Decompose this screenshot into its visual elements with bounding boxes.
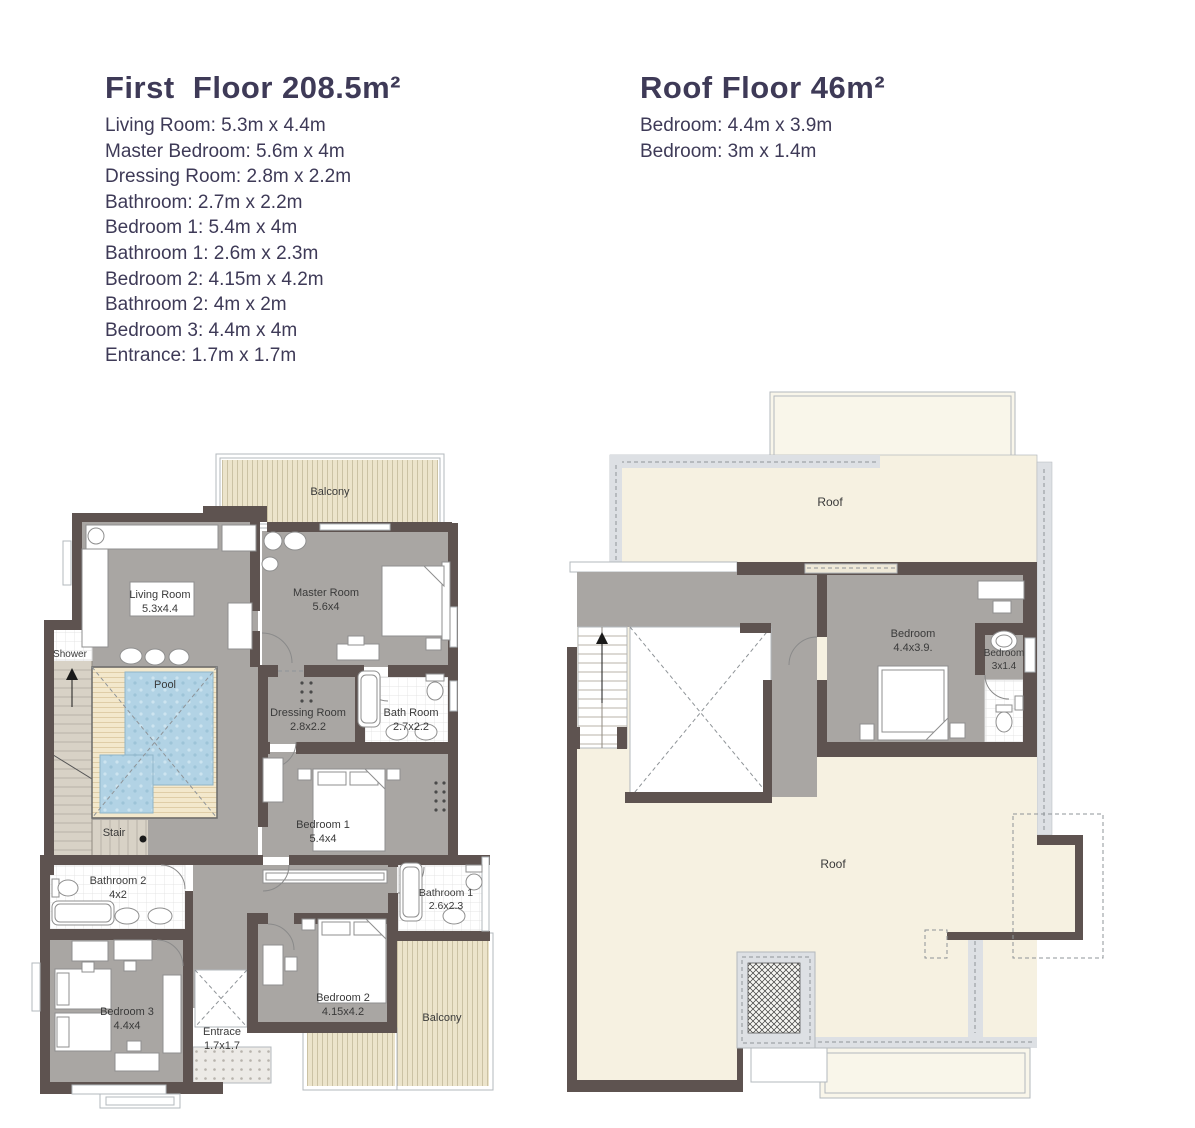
wall — [40, 865, 50, 1092]
dimension-line: Bedroom 3: 4.4m x 4m — [105, 318, 401, 344]
label-balcony-br: Balcony — [422, 1012, 462, 1024]
desk — [337, 644, 379, 660]
wall — [570, 727, 580, 749]
label-bathroom2: Bathroom 2 — [90, 875, 147, 887]
shape-rect — [751, 1048, 827, 1082]
dimension-line: Master Bedroom: 5.6m x 4m — [105, 139, 401, 165]
shape-rect — [466, 865, 482, 872]
roof-floor-dimensions: Bedroom: 4.4m x 3.9mBedroom: 3m x 1.4m — [640, 113, 885, 164]
label-roof-bedroom2: Bedroom — [984, 648, 1025, 659]
dimension-line: Bathroom 2: 4m x 2m — [105, 292, 401, 318]
wall — [625, 792, 772, 803]
roof-floor-plan: RoofBedroom4.4x3.9.Bedroom3x1.4Roof — [555, 385, 1195, 1128]
wall — [567, 647, 577, 1087]
wardrobe — [284, 532, 306, 550]
nightstand — [950, 723, 965, 738]
window — [72, 1085, 166, 1094]
wall — [567, 1080, 739, 1092]
label-balcony-top: Balcony — [310, 486, 350, 498]
sofa — [86, 525, 218, 549]
roof-floor-plan-svg: RoofBedroom4.4x3.9.Bedroom3x1.4Roof — [555, 385, 1195, 1123]
wall — [388, 893, 398, 931]
stair-dot — [140, 836, 147, 843]
label-roof-bedroom2-dims: 3x1.4 — [992, 661, 1017, 672]
wall — [388, 931, 490, 941]
toilet — [427, 682, 443, 700]
wall — [617, 727, 627, 749]
toilet — [996, 712, 1012, 732]
wardrobe — [262, 557, 278, 571]
dimension-line: Dressing Room: 2.8m x 2.2m — [105, 164, 401, 190]
dimension-line: Bathroom 1: 2.6m x 2.3m — [105, 241, 401, 267]
sofa — [82, 549, 108, 647]
wall — [258, 677, 268, 744]
dimension-line: Entrance: 1.7m x 1.7m — [105, 343, 401, 369]
wall — [763, 680, 772, 792]
label-roof-bedroom: Bedroom — [891, 628, 936, 640]
desk — [72, 941, 108, 961]
shape-rect — [1015, 696, 1023, 710]
entry-steps — [193, 1047, 271, 1083]
armchair — [222, 525, 256, 551]
label-roof-main: Roof — [820, 857, 846, 871]
shape-ellipse — [88, 528, 104, 544]
window — [320, 524, 390, 530]
pool-water-small — [100, 755, 153, 813]
shape-rect — [57, 973, 69, 1005]
label-bathroom2-dims: 4x2 — [109, 889, 127, 901]
wall — [183, 933, 193, 1094]
chair — [82, 962, 94, 972]
window — [450, 607, 457, 647]
pergola-lattice — [748, 963, 800, 1033]
chair — [348, 636, 364, 645]
roof-top-panel — [770, 392, 1015, 462]
label-bath-room-dims: 2.7x2.2 — [393, 721, 429, 733]
window — [32, 963, 40, 1011]
wardrobe — [264, 532, 282, 550]
dimension-line: Living Room: 5.3m x 4.4m — [105, 113, 401, 139]
window — [450, 681, 457, 711]
parapet — [482, 857, 489, 931]
bathtub — [52, 901, 114, 925]
wall — [258, 665, 278, 677]
roof-top — [610, 455, 1037, 563]
roof-floor-title: Roof Floor 46m² — [640, 70, 885, 106]
desk — [978, 581, 1024, 599]
nightstand — [298, 769, 311, 780]
wall — [40, 929, 185, 940]
parapet — [570, 562, 737, 572]
dresser — [115, 1053, 159, 1071]
page: { "palette": { "wall":"#5e5350","floor":… — [0, 0, 1195, 1123]
label-dressing-room: Dressing Room — [270, 707, 346, 719]
label-dressing-room-dims: 2.8x2.2 — [290, 721, 326, 733]
window — [63, 541, 71, 585]
sink — [148, 908, 172, 924]
corridor-floor — [577, 572, 817, 627]
label-shower: Shower — [53, 649, 88, 660]
label-bathroom1: Bathroom 1 — [419, 887, 473, 899]
label-bedroom3-dims: 4.4x4 — [114, 1020, 141, 1032]
wall — [304, 665, 364, 677]
wall — [817, 680, 827, 742]
porch — [100, 1094, 180, 1108]
dimension-line: Bedroom 1: 5.4m x 4m — [105, 215, 401, 241]
label-bathroom1-dims: 2.6x2.3 — [429, 900, 464, 912]
label-bedroom1: Bedroom 1 — [296, 819, 350, 831]
wall — [448, 742, 458, 855]
wall — [72, 513, 82, 625]
planter — [169, 649, 189, 665]
label-living-room: Living Room — [129, 589, 190, 601]
shape-rect — [426, 674, 444, 681]
wall — [817, 575, 827, 637]
toilet — [58, 880, 78, 896]
shape-rect — [577, 1037, 739, 1082]
wall — [193, 855, 263, 865]
wardrobe — [163, 975, 181, 1053]
wall — [1075, 835, 1083, 940]
label-master-room-dims: 5.6x4 — [313, 601, 340, 613]
label-bedroom2-dims: 4.15x4.2 — [322, 1006, 364, 1018]
wall — [817, 742, 1037, 757]
label-bath-room: Bath Room — [383, 707, 438, 719]
planter — [120, 648, 142, 664]
dimension-line: Bedroom: 4.4m x 3.9m — [640, 113, 885, 139]
closet — [263, 870, 387, 883]
nightstand — [860, 724, 874, 740]
roof-lower-terrace — [820, 1048, 1030, 1098]
wall — [388, 855, 398, 867]
wall — [258, 913, 268, 924]
label-bedroom3: Bedroom 3 — [100, 1006, 154, 1018]
landing-floor — [771, 627, 817, 797]
chair — [285, 957, 297, 971]
desk — [263, 945, 283, 985]
label-bedroom1-dims: 5.4x4 — [310, 833, 337, 845]
shape-rect — [57, 1017, 69, 1047]
wall — [185, 891, 193, 940]
wall — [247, 913, 258, 1033]
first-floor-header: First Floor 208.5m² Living Room: 5.3m x … — [105, 70, 401, 369]
first-floor-dimensions: Living Room: 5.3m x 4.4mMaster Bedroom: … — [105, 113, 401, 369]
label-living-room-dims: 5.3x4.4 — [142, 603, 178, 615]
shape-rect — [322, 922, 350, 935]
wall — [247, 1022, 397, 1033]
nightstand — [302, 919, 315, 930]
planter — [145, 649, 165, 665]
label-entrance: Entrace — [203, 1026, 241, 1038]
desk — [114, 940, 152, 960]
stairs — [54, 661, 92, 861]
wall — [947, 932, 1083, 940]
shape-rect — [318, 772, 346, 785]
label-roof-bedroom-dims: 4.4x3.9. — [893, 642, 932, 654]
shape-rect — [1037, 845, 1075, 932]
label-bedroom2: Bedroom 2 — [316, 992, 370, 1004]
dimension-line: Bathroom: 2.7m x 2.2m — [105, 190, 401, 216]
label-master-room: Master Room — [293, 587, 359, 599]
label-entrance-dims: 1.7x1.7 — [204, 1040, 240, 1052]
first-floor-plan: BalconyLiving Room5.3x4.4Master Room5.6x… — [30, 435, 530, 1128]
first-floor-plan-svg: BalconyLiving Room5.3x4.4Master Room5.6x… — [30, 435, 530, 1123]
roof-floor-header: Roof Floor 46m² Bedroom: 4.4m x 3.9mBedr… — [640, 70, 885, 164]
wall — [740, 623, 771, 633]
wall — [258, 742, 270, 754]
dimension-line: Bedroom 2: 4.15m x 4.2m — [105, 267, 401, 293]
window — [1025, 638, 1035, 672]
label-stair: Stair — [103, 827, 126, 839]
sink — [115, 908, 139, 924]
shape-rect — [307, 1032, 395, 1086]
label-pool: Pool — [154, 679, 176, 691]
chair — [124, 961, 136, 971]
nightstand — [426, 638, 441, 650]
wall — [40, 855, 193, 865]
chair — [993, 601, 1011, 613]
shape-rect — [996, 705, 1012, 712]
wardrobe — [263, 758, 283, 802]
first-floor-title: First Floor 208.5m² — [105, 70, 401, 106]
label-roof-top: Roof — [817, 495, 843, 509]
chair — [127, 1041, 141, 1051]
tv-unit — [228, 603, 252, 649]
wall — [296, 742, 448, 754]
dimension-line: Bedroom: 3m x 1.4m — [640, 139, 885, 165]
nightstand — [387, 769, 400, 780]
